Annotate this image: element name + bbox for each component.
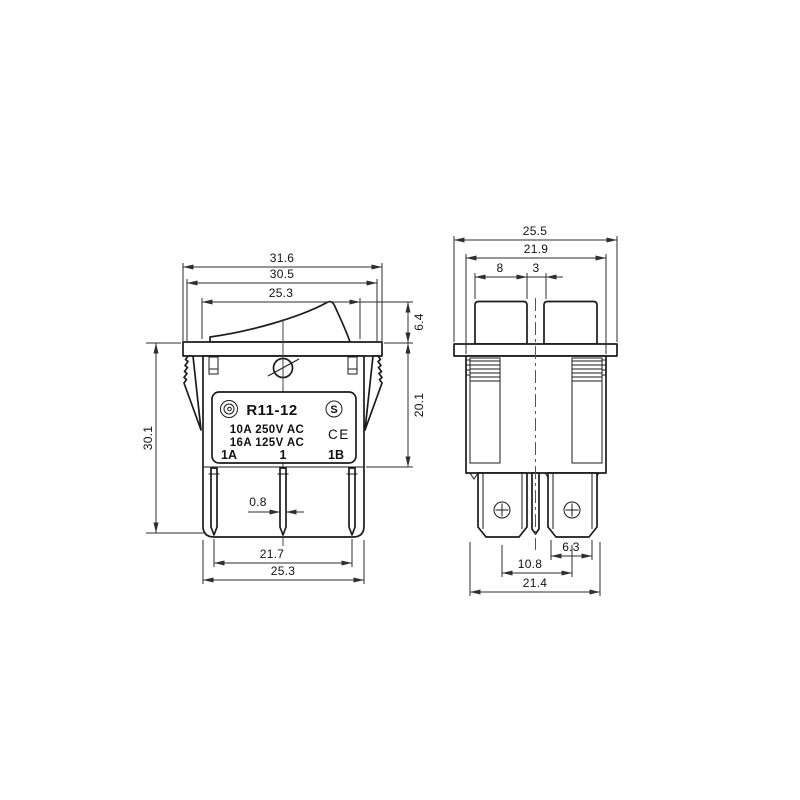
svg-text:25.3: 25.3 <box>271 564 296 578</box>
pole-label-right: 1B <box>328 448 344 462</box>
terminal-pin-center <box>278 468 289 535</box>
svg-text:25.3: 25.3 <box>269 286 294 300</box>
drawing-canvas: R11-12 S 10A 250V AC 16A 125V AC CE 1A 1… <box>0 0 800 800</box>
svg-text:6.3: 6.3 <box>562 540 580 554</box>
ce-mark-icon: CE <box>328 427 350 442</box>
svg-text:30.1: 30.1 <box>141 426 155 451</box>
terminal-pin-right <box>347 468 358 535</box>
rocker-switch-drawing: R11-12 S 10A 250V AC 16A 125V AC CE 1A 1… <box>0 0 800 800</box>
svg-text:6.4: 6.4 <box>412 313 426 331</box>
rocker-hump-right <box>544 302 597 345</box>
svg-text:21.9: 21.9 <box>524 242 549 256</box>
rocker-hump-left <box>475 302 527 345</box>
background <box>0 0 800 800</box>
svg-text:31.6: 31.6 <box>270 251 295 265</box>
dim-rocker-gap: 3 <box>533 261 540 275</box>
svg-text:25.5: 25.5 <box>523 224 548 238</box>
svg-text:21.7: 21.7 <box>260 547 285 561</box>
svg-text:0.8: 0.8 <box>249 495 267 509</box>
model-text: R11-12 <box>246 402 297 419</box>
svg-text:30.5: 30.5 <box>270 267 295 281</box>
rating-line1: 10A 250V AC <box>230 424 305 436</box>
svg-text:10.8: 10.8 <box>518 557 543 571</box>
svg-text:S: S <box>330 404 337 416</box>
svg-text:20.1: 20.1 <box>412 393 426 418</box>
pole-label-center: 1 <box>280 448 287 462</box>
side-terminal-right <box>548 473 597 537</box>
rating-line2: 16A 125V AC <box>230 437 305 449</box>
pole-label-left: 1A <box>221 448 237 462</box>
svg-text:8: 8 <box>497 261 504 275</box>
side-terminal-left <box>478 473 527 537</box>
svg-text:21.4: 21.4 <box>523 576 548 590</box>
